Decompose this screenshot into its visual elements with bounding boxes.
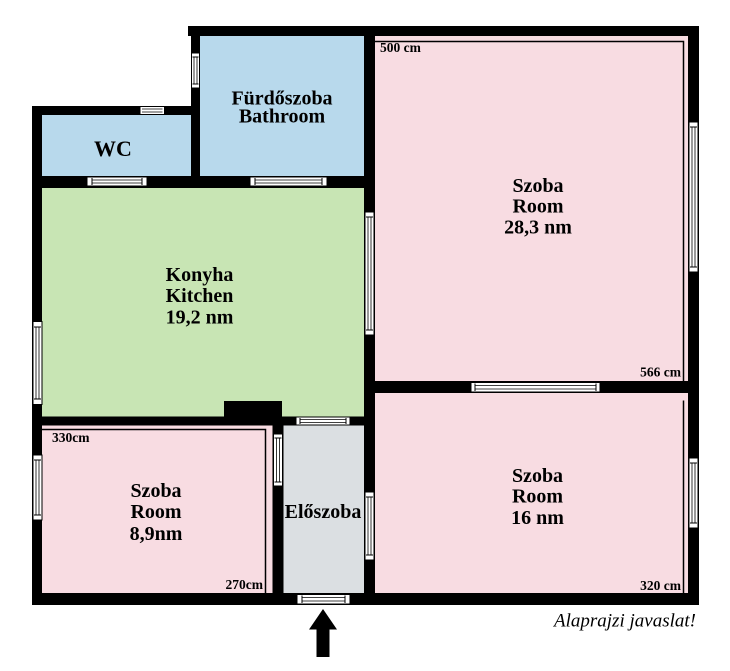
- svg-text:Szoba: Szoba: [512, 175, 563, 197]
- svg-text:WC: WC: [94, 136, 132, 161]
- svg-text:Kitchen: Kitchen: [166, 285, 234, 307]
- svg-text:Konyha: Konyha: [166, 264, 234, 286]
- svg-text:566 cm: 566 cm: [640, 365, 682, 380]
- svg-text:16 nm: 16 nm: [511, 507, 564, 529]
- svg-text:Bathroom: Bathroom: [239, 106, 326, 128]
- svg-text:320 cm: 320 cm: [640, 578, 682, 593]
- svg-text:Szoba: Szoba: [130, 480, 181, 502]
- svg-text:Room: Room: [130, 501, 181, 523]
- svg-text:Room: Room: [512, 196, 563, 218]
- svg-text:500 cm: 500 cm: [380, 40, 422, 55]
- svg-text:Előszoba: Előszoba: [285, 501, 362, 523]
- svg-text:28,3 nm: 28,3 nm: [504, 217, 572, 239]
- svg-text:Szoba: Szoba: [512, 465, 563, 487]
- svg-text:Alaprajzi javaslat!: Alaprajzi javaslat!: [552, 611, 696, 632]
- svg-text:270cm: 270cm: [226, 577, 264, 592]
- svg-text:330cm: 330cm: [52, 430, 90, 445]
- svg-text:19,2 nm: 19,2 nm: [166, 307, 234, 329]
- svg-text:Room: Room: [512, 486, 563, 508]
- svg-text:8,9nm: 8,9nm: [130, 523, 183, 545]
